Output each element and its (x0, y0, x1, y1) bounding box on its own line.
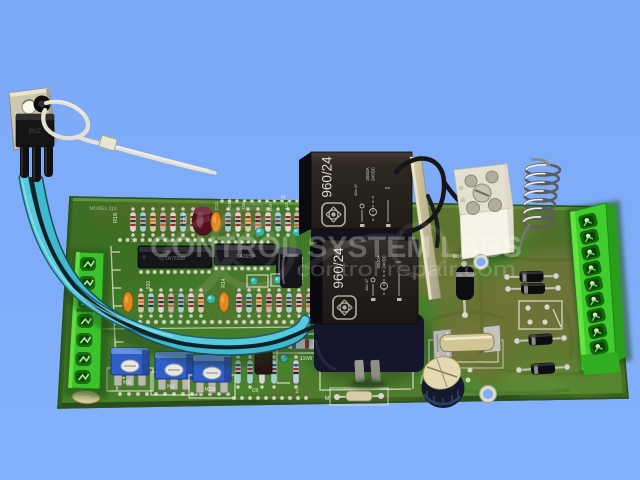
svg-text:C11: C11 (214, 201, 220, 210)
svg-text:960/24: 960/24 (320, 156, 335, 198)
svg-text:M: M (325, 396, 330, 402)
svg-text:R3: R3 (123, 380, 131, 386)
svg-text:910: 910 (146, 281, 152, 290)
svg-text:1SW: 1SW (299, 356, 312, 362)
svg-text:R17: R17 (183, 213, 189, 223)
svg-text:R28: R28 (204, 387, 216, 393)
svg-text:MODEL 110: MODEL 110 (89, 206, 116, 212)
svg-text:24VDC: 24VDC (371, 167, 376, 181)
svg-text:113: 113 (284, 202, 290, 210)
svg-text:R2: R2 (167, 384, 175, 390)
svg-text:R18: R18 (113, 213, 119, 223)
svg-text:C8: C8 (252, 388, 259, 394)
svg-text:30/40A: 30/40A (365, 167, 370, 180)
svg-text:S: S (131, 238, 135, 244)
svg-text:IN: IN (281, 195, 286, 201)
svg-text:control repair.com: control repair.com (296, 259, 516, 281)
svg-text:40a 47: 40a 47 (353, 183, 358, 196)
svg-text:BUZ: BUZ (29, 129, 41, 135)
